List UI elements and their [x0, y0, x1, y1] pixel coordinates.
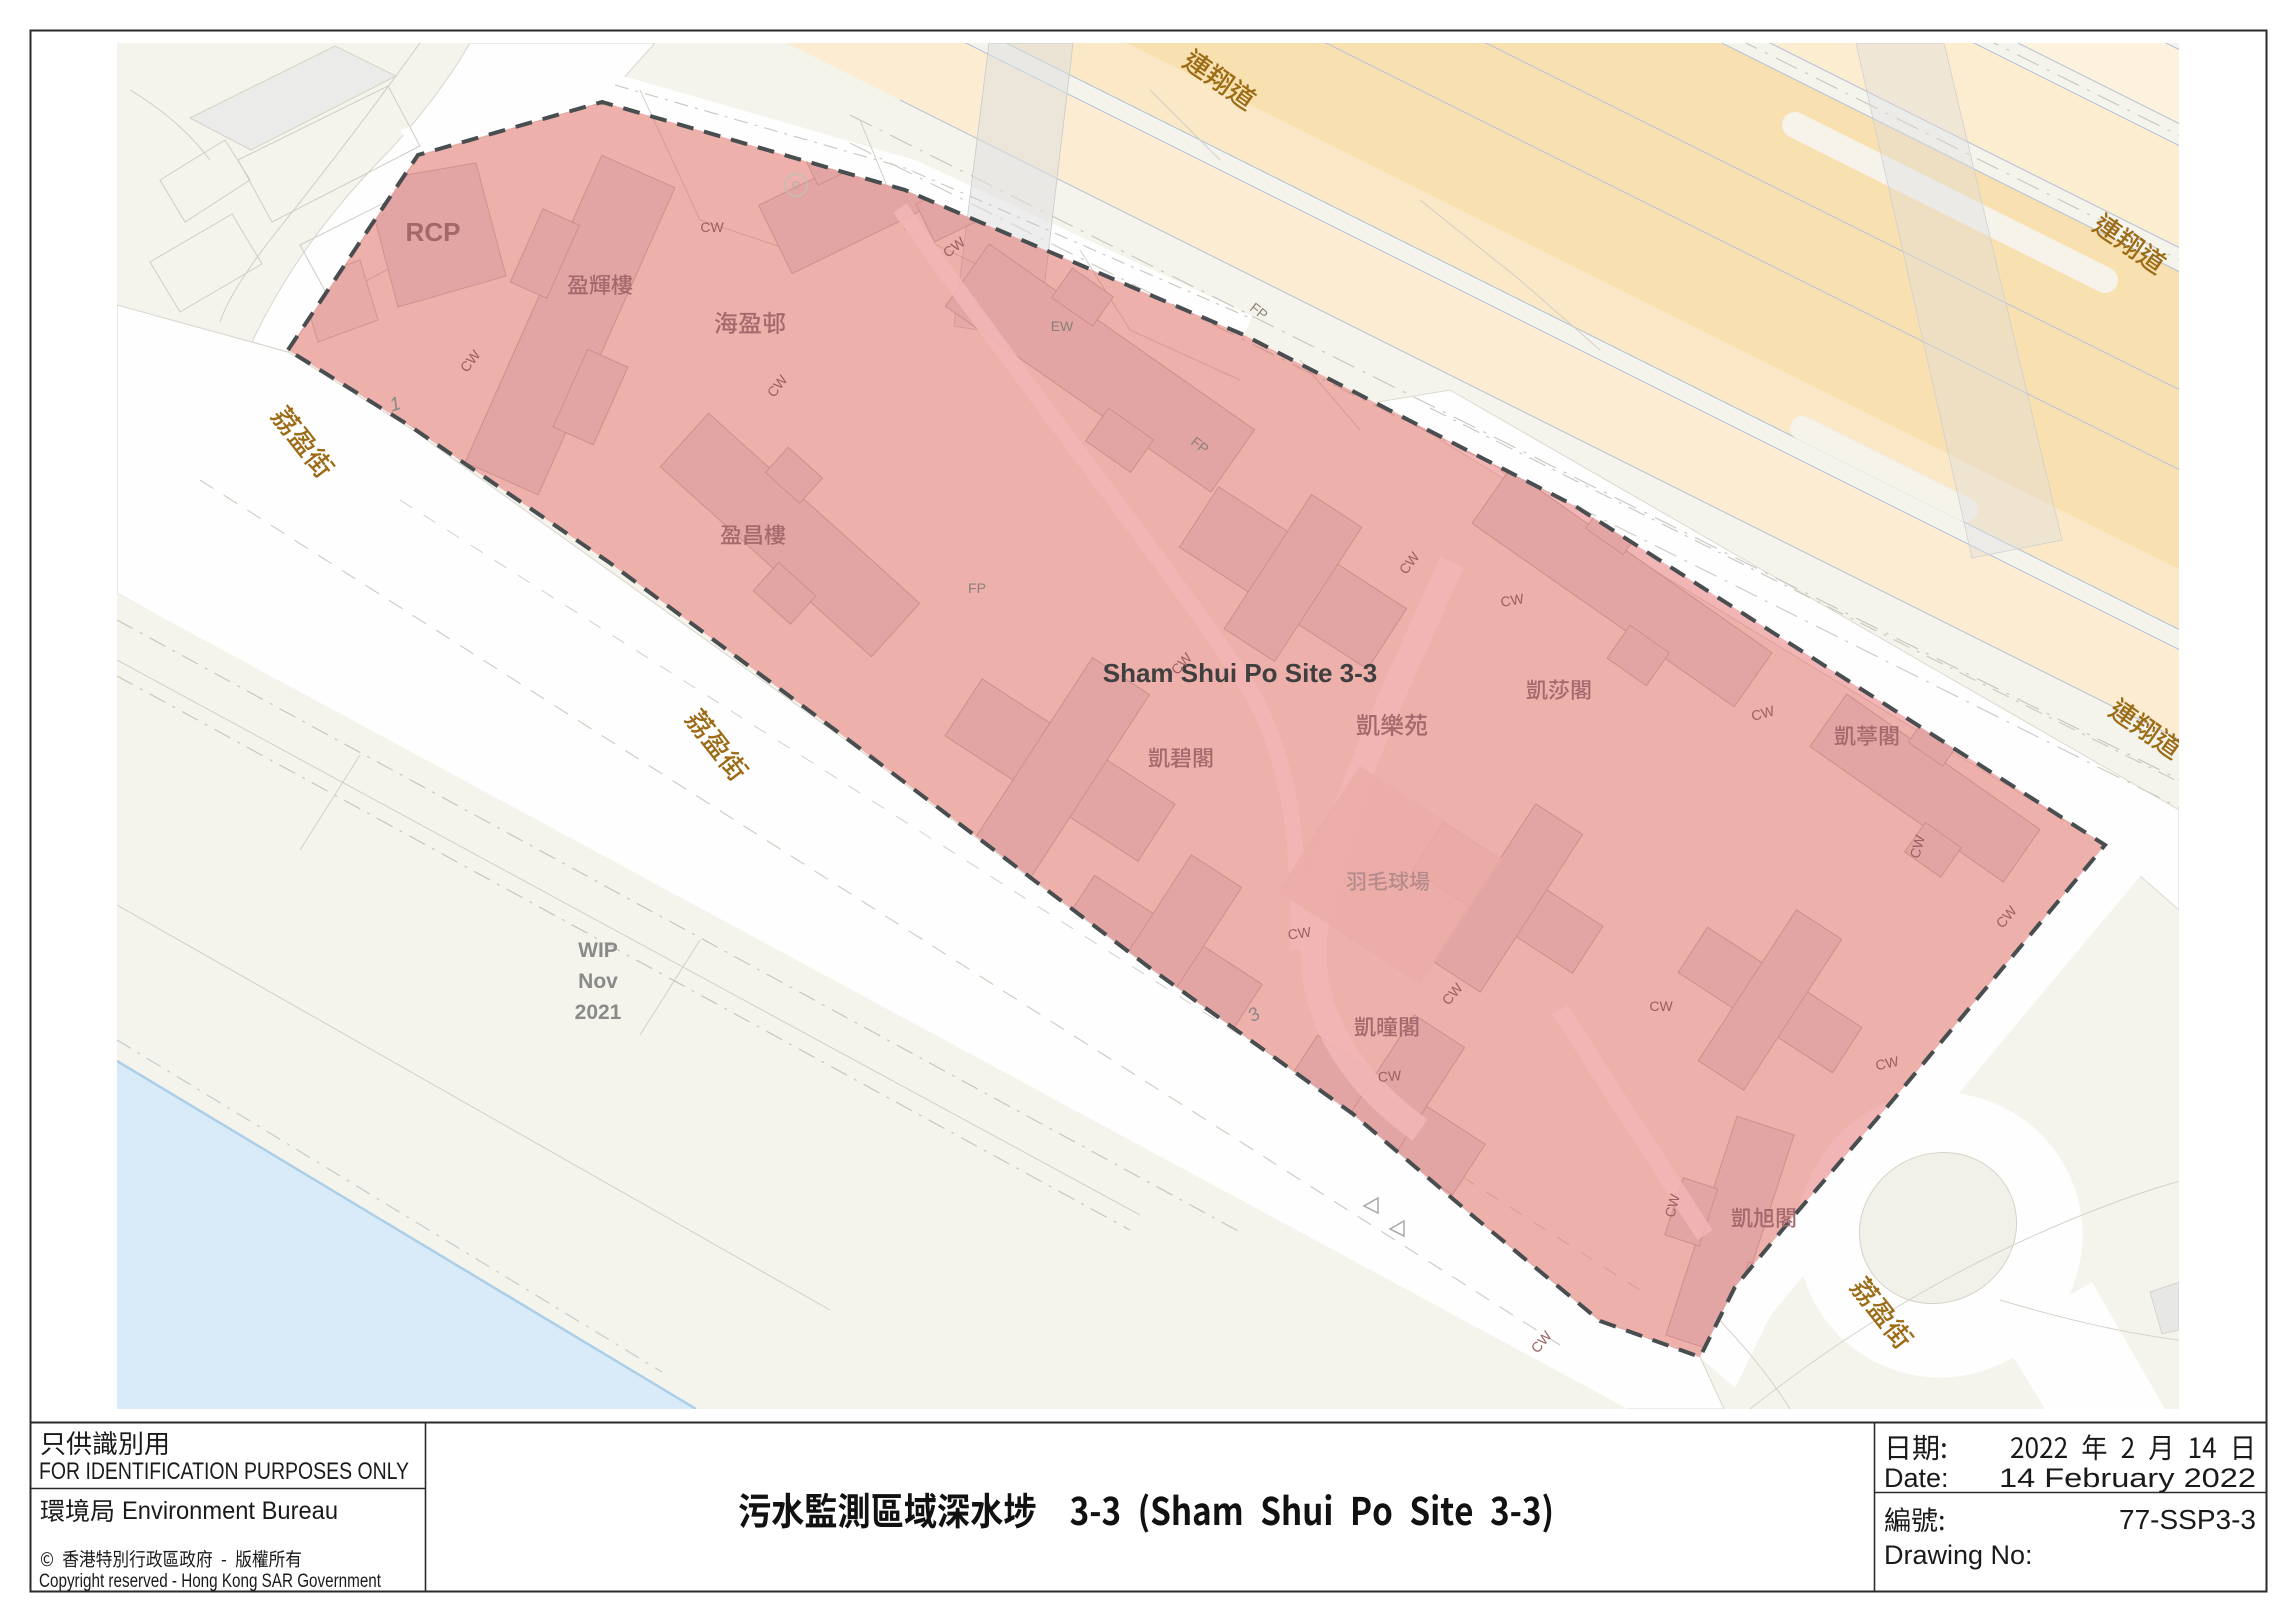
- svg-text:Nov: Nov: [578, 970, 618, 993]
- svg-text:Date:: Date:: [1884, 1463, 1949, 1493]
- svg-text:FOR IDENTIFICATION PURPOSES ON: FOR IDENTIFICATION PURPOSES ONLY: [39, 1458, 409, 1485]
- svg-text:CW: CW: [1649, 998, 1673, 1014]
- svg-text:14 February 2022: 14 February 2022: [1999, 1463, 2256, 1493]
- svg-text:CW: CW: [1377, 1067, 1402, 1085]
- svg-text:FP: FP: [968, 580, 986, 596]
- svg-text:Drawing No:: Drawing No:: [1884, 1540, 2033, 1570]
- svg-text:R: R: [792, 179, 801, 193]
- svg-text:Sham Shui Po Site 3-3: Sham Shui Po Site 3-3: [1103, 658, 1378, 688]
- svg-text:RCP: RCP: [406, 217, 461, 247]
- svg-text:77-SSP3-3: 77-SSP3-3: [2119, 1504, 2256, 1535]
- svg-text:Environment Bureau: Environment Bureau: [122, 1497, 338, 1525]
- svg-text:CW: CW: [700, 219, 724, 235]
- svg-text:Copyright reserved - Hong Kong: Copyright reserved - Hong Kong SAR Gover…: [39, 1570, 381, 1592]
- svg-text:CW: CW: [1287, 923, 1313, 942]
- svg-text:2021: 2021: [575, 1001, 622, 1024]
- svg-text:EW: EW: [1051, 318, 1074, 334]
- svg-text:WIP: WIP: [578, 939, 618, 962]
